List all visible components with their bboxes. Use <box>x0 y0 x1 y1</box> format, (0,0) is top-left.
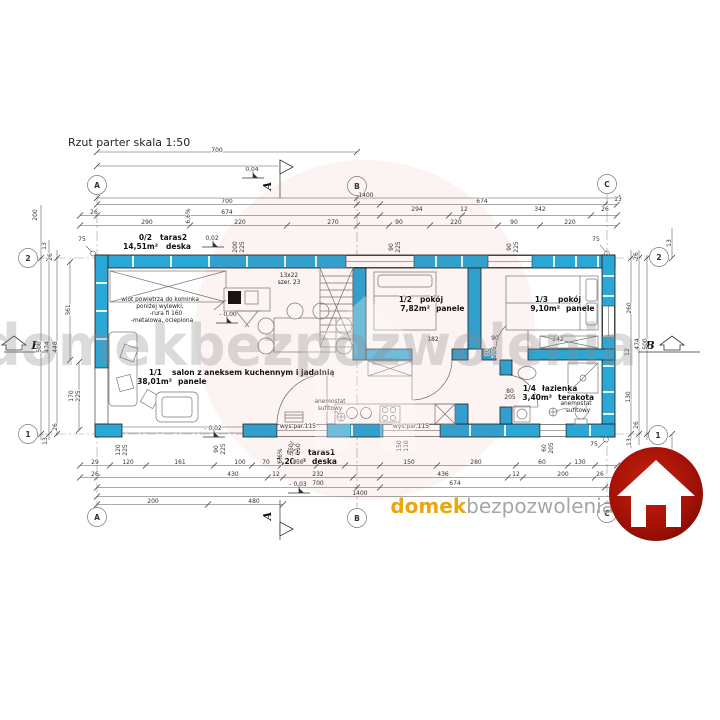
dimension-label: 26 <box>633 421 640 429</box>
dimension-label: 225 <box>220 443 227 455</box>
dimension-label: 75 <box>592 236 600 243</box>
svg-text:1: 1 <box>655 431 660 440</box>
vent-bath <box>549 408 557 416</box>
dimension-label: 430 <box>227 471 239 478</box>
dimension-label: 200 <box>557 471 569 478</box>
dimension-label: 6,6% <box>185 208 192 224</box>
brand-orange: domek <box>390 494 466 518</box>
dimension-label: 60 <box>541 444 548 452</box>
svg-text:panele: panele <box>566 304 595 313</box>
axis-2-right: 2 <box>650 248 669 267</box>
axis-1-right: 1 <box>649 426 668 445</box>
dimension-label: 13 <box>42 437 49 445</box>
dimension-label: 26 <box>91 471 99 478</box>
dimension-label: 29 <box>91 459 99 466</box>
dimension-label: 120 <box>122 459 134 466</box>
svg-text:0/2: 0/2 <box>139 233 152 242</box>
svg-text:łazienka: łazienka <box>541 384 577 393</box>
dimension-label: 500 <box>642 338 649 350</box>
dimension-label: 205 <box>548 442 555 454</box>
dimension-label: 13 <box>614 196 622 203</box>
svg-text:A: A <box>94 181 100 190</box>
dimension-label: 200 <box>32 209 39 221</box>
dimension-label: 26 <box>47 253 54 261</box>
dimension-label: 130 <box>625 391 632 403</box>
svg-text:sufitowy: sufitowy <box>566 408 591 414</box>
dimension-label: 260 <box>626 302 633 314</box>
washing-machine <box>514 406 530 422</box>
dimension-label: 13 <box>41 242 48 250</box>
svg-text:9,10m²: 9,10m² <box>530 304 560 313</box>
terrace-edge <box>122 427 243 433</box>
svg-text:taras2: taras2 <box>160 233 187 242</box>
svg-text:A: A <box>94 513 100 522</box>
svg-text:pokój: pokój <box>558 295 581 304</box>
svg-text:B: B <box>354 514 360 523</box>
dimension-label: 700 <box>221 198 233 205</box>
room-label-taras2: 0/2 taras2 14,51m² deska <box>123 233 191 251</box>
dimension-label: 170 <box>68 390 75 402</box>
svg-text:poniżej wylewki,: poniżej wylewki, <box>136 304 184 310</box>
svg-text:deska: deska <box>166 242 191 251</box>
svg-text:2: 2 <box>656 253 661 262</box>
dimension-label: 290 <box>141 219 153 226</box>
svg-text:C: C <box>604 180 610 189</box>
dimension-label: 90 <box>510 219 518 226</box>
page-title: Rzut parter skala 1:50 <box>68 136 190 149</box>
svg-text:0,04: 0,04 <box>245 166 259 173</box>
dimension-label: 13 <box>666 239 673 247</box>
anemostat-bath: anemostat <box>560 401 592 407</box>
dimension-label: 220 <box>564 219 576 226</box>
dimension-label: 342 <box>534 206 546 213</box>
dimension-label: 75 <box>590 441 598 448</box>
dimension-label: 12 <box>512 471 520 478</box>
dimension-label: 26 <box>601 206 609 213</box>
brand-gray: bezpozwolenia <box>466 494 614 518</box>
dimension-label: 60 <box>538 459 546 466</box>
dimension-label: 225 <box>75 390 82 402</box>
corner-post-sw <box>95 424 122 437</box>
dimension-label: 26 <box>596 471 604 478</box>
dimension-label: 200 <box>147 498 159 505</box>
dimension-label: 120 <box>115 444 122 456</box>
svg-text:A: A <box>261 511 274 521</box>
dimension-label: 225 <box>122 444 129 456</box>
armchair <box>156 392 198 422</box>
svg-text:14,51m²: 14,51m² <box>123 242 158 251</box>
dimension-label: 161 <box>174 459 186 466</box>
dimension-label: 26 <box>633 252 640 260</box>
dimension-label: 90 <box>213 445 220 453</box>
dimension-label: 480 <box>248 498 260 505</box>
dimension-label: 100 <box>234 459 246 466</box>
watermark-text: domekbezpozwolenia <box>0 313 637 379</box>
dimension-label: 674 <box>221 209 233 216</box>
dimension-label: 26 <box>90 209 98 216</box>
floorplan-page: Rzut parter skala 1:50 <box>0 0 720 720</box>
svg-text:1: 1 <box>25 430 30 439</box>
room-label-lazienka: 1/4 łazienka 3,40m² terakota <box>522 384 594 402</box>
svg-text:- 0,02: - 0,02 <box>204 425 222 432</box>
axis-b-bottom: B <box>348 509 367 528</box>
dimension-label: 75 <box>78 236 86 243</box>
svg-text:3,40m²: 3,40m² <box>522 393 552 402</box>
fireplace-note: wlot powietrza do kominka <box>121 297 199 303</box>
brand-wordmark: domekbezpozwolenia <box>390 494 614 518</box>
dimension-label: 13 <box>626 438 633 446</box>
dimension-label: 130 <box>574 459 586 466</box>
axis-c-top: C <box>598 175 617 194</box>
axis-1-left: 1 <box>19 425 38 444</box>
dimension-label: 700 <box>211 147 223 154</box>
axis-a-top: A <box>88 176 107 195</box>
axis-2-left: 2 <box>19 249 38 268</box>
svg-text:0,02: 0,02 <box>205 235 219 242</box>
dimension-label: 674 <box>449 480 461 487</box>
elevation-002-bottom: - 0,02 <box>203 425 225 437</box>
floorplan-canvas: Rzut parter skala 1:50 <box>0 0 720 720</box>
dimension-label: 26 <box>52 423 59 431</box>
elevation-004: 0,04 <box>242 166 264 178</box>
axis-a-bottom: A <box>88 508 107 527</box>
section-a-bottom: A <box>261 500 293 540</box>
svg-text:1/3: 1/3 <box>535 295 548 304</box>
svg-text:2: 2 <box>25 254 30 263</box>
